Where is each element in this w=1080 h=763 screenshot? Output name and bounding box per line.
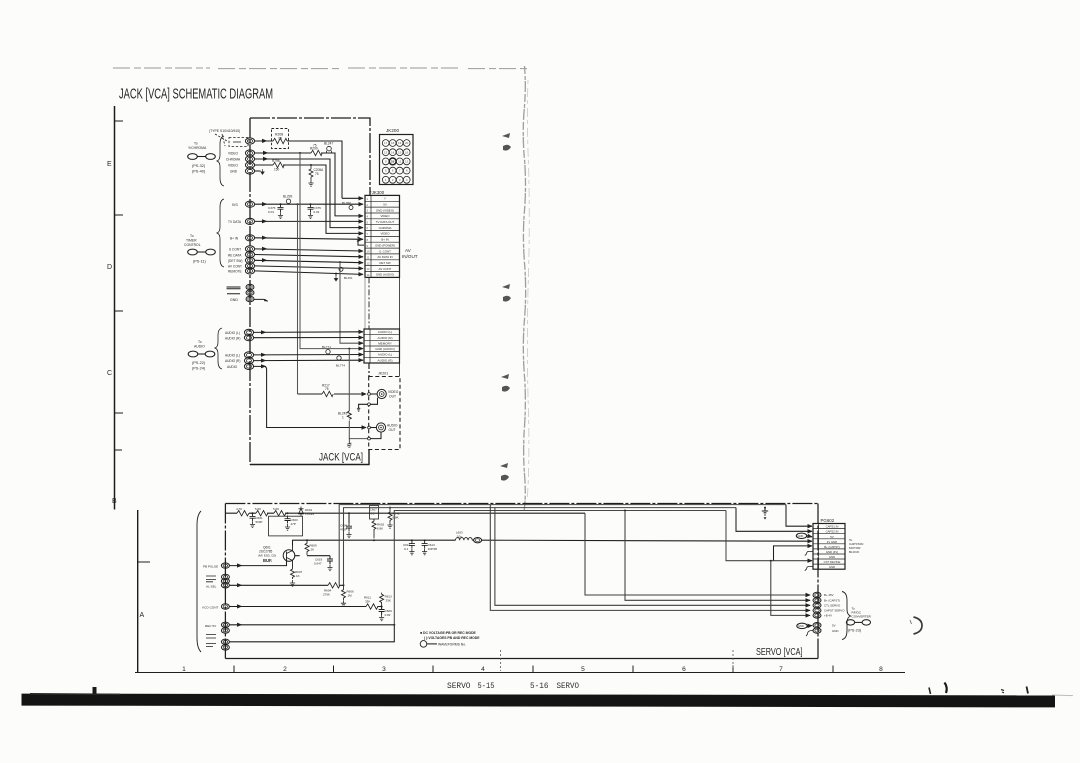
svg-text:To: To xyxy=(190,234,194,238)
svg-text:GND: GND xyxy=(829,555,835,559)
svg-text:SERVO: SERVO xyxy=(557,682,580,691)
svg-text:1K: 1K xyxy=(296,574,300,578)
svg-text:*JK300: *JK300 xyxy=(370,190,385,195)
svg-text:12: 12 xyxy=(405,160,409,164)
svg-text:OUT: OUT xyxy=(389,428,396,432)
svg-text:CHROMA: CHROMA xyxy=(226,157,241,161)
svg-text:GND: GND xyxy=(829,565,835,569)
svg-text:(PS-22): (PS-22) xyxy=(192,361,206,365)
svg-text:IN/OUT: IN/OUT xyxy=(402,254,418,259)
svg-text:E: E xyxy=(107,161,112,168)
svg-text:Y: Y xyxy=(384,197,386,201)
svg-text:(PS-11): (PS-11) xyxy=(193,260,207,264)
svg-text:5.6K: 5.6K xyxy=(273,507,279,511)
svg-text:S. CONT: S. CONT xyxy=(379,249,391,253)
svg-text:(PS-40): (PS-40) xyxy=(192,170,206,174)
svg-text:JK201: JK201 xyxy=(378,372,388,376)
svg-text:GND (VIDEO): GND (VIDEO) xyxy=(376,208,394,212)
svg-text:SERVO: SERVO xyxy=(447,682,471,691)
svg-text:CST DEVICE: CST DEVICE xyxy=(824,560,841,564)
svg-text:(TYPE S10/410/510): (TYPE S10/410/510) xyxy=(209,129,240,133)
svg-text:75: 75 xyxy=(313,143,317,147)
svg-text:To: To xyxy=(198,340,202,344)
svg-text:VIDEO: VIDEO xyxy=(381,232,391,236)
svg-text:1M: 1M xyxy=(348,593,353,597)
svg-text:1: 1 xyxy=(182,666,186,673)
svg-text:PB PULSE: PB PULSE xyxy=(203,565,218,569)
svg-text:2: 2 xyxy=(283,666,287,673)
svg-text:75: 75 xyxy=(315,172,319,176)
svg-text:S CONT: S CONT xyxy=(229,248,241,252)
svg-text:TV DATA OUT: TV DATA OUT xyxy=(376,220,395,224)
svg-text:B: B xyxy=(112,498,117,505)
svg-text:AUDIO (R): AUDIO (R) xyxy=(378,358,393,362)
svg-text:AUDIO (L): AUDIO (L) xyxy=(378,353,392,357)
svg-text:AUDIO: AUDIO xyxy=(194,345,205,349)
svg-text:TV DATA: TV DATA xyxy=(228,220,242,224)
svg-text:( ):VOLTAGES PB AND REC MODE: ( ):VOLTAGES PB AND REC MODE xyxy=(424,636,480,640)
svg-text:Y/CHROMA: Y/CHROMA xyxy=(188,146,207,150)
svg-text:CONVERTER: CONVERTER xyxy=(852,615,872,619)
svg-text:75: 75 xyxy=(325,387,329,391)
svg-text:8: 8 xyxy=(879,666,883,673)
svg-text:GND (POWER): GND (POWER) xyxy=(375,243,395,247)
svg-text:B+ IN: B+ IN xyxy=(381,238,388,242)
svg-text:AUDIO (R): AUDIO (R) xyxy=(378,336,393,340)
svg-text:PG602: PG602 xyxy=(821,518,835,523)
svg-text:A: A xyxy=(140,612,145,619)
svg-text:(PS-23): (PS-23) xyxy=(848,629,862,633)
svg-text:CTL SERVO: CTL SERVO xyxy=(824,604,841,608)
svg-text:BL3%: BL3% xyxy=(344,276,353,280)
svg-text:19: 19 xyxy=(398,141,402,145)
svg-text:B+ IN: B+ IN xyxy=(230,237,239,241)
svg-text:6.8K: 6.8K xyxy=(393,515,399,519)
svg-text:VCO CONT: VCO CONT xyxy=(202,606,218,610)
svg-text:AUDIO (R): AUDIO (R) xyxy=(225,359,240,363)
svg-text:17: 17 xyxy=(384,141,388,145)
svg-text:AV CONT: AV CONT xyxy=(228,265,242,269)
svg-text:JACK [VCA] SCHEMATIC DIAGRAM: JACK [VCA] SCHEMATIC DIAGRAM xyxy=(119,87,273,103)
svg-text:(PS-32): (PS-32) xyxy=(192,164,206,168)
svg-text:5.6K: 5.6K xyxy=(255,507,261,511)
svg-text:AUDIO (L): AUDIO (L) xyxy=(225,331,240,335)
svg-text:AV CONT: AV CONT xyxy=(379,267,392,271)
svg-text:13: 13 xyxy=(384,150,388,154)
svg-text:OUT: OUT xyxy=(389,394,396,398)
svg-text:5-15: 5-15 xyxy=(478,682,495,691)
svg-text:BL774: BL774 xyxy=(336,364,345,368)
svg-text:10P/35: 10P/35 xyxy=(428,547,438,551)
svg-text:BLOCK: BLOCK xyxy=(849,550,860,554)
svg-text:GND (4V): GND (4V) xyxy=(826,550,838,554)
svg-text:GND (AUDIO): GND (AUDIO) xyxy=(375,347,395,351)
svg-text:15: 15 xyxy=(398,150,402,154)
svg-text:+B 4V: +B 4V xyxy=(824,614,832,618)
svg-text:AUDIO (L): AUDIO (L) xyxy=(378,330,392,334)
svg-text:CHROMA: CHROMA xyxy=(379,226,392,230)
svg-text:270K: 270K xyxy=(323,592,330,596)
svg-text:CAPS1 IN: CAPS1 IN xyxy=(826,525,839,529)
svg-text:GND: GND xyxy=(230,298,238,302)
svg-text:JK200: JK200 xyxy=(386,128,399,133)
svg-text:5V: 5V xyxy=(830,535,834,539)
svg-text:3: 3 xyxy=(382,666,386,673)
svg-text:BUF.: BUF. xyxy=(263,558,272,563)
svg-text:C: C xyxy=(107,370,112,377)
svg-text:(DET SW): (DET SW) xyxy=(228,259,242,263)
svg-text:R796: R796 xyxy=(272,159,280,163)
svg-text:VIDEO: VIDEO xyxy=(228,163,238,167)
svg-text:0.1: 0.1 xyxy=(371,511,375,515)
svg-text:0.82: 0.82 xyxy=(385,613,391,617)
svg-text:■ DC VOLTAGE:PB OR REC MODE: ■ DC VOLTAGE:PB OR REC MODE xyxy=(420,631,477,635)
svg-text:VIDEO: VIDEO xyxy=(381,214,391,218)
svg-text:AUDIO (L): AUDIO (L) xyxy=(225,354,240,358)
svg-text:AV: AV xyxy=(405,248,412,253)
svg-text:D: D xyxy=(107,264,112,271)
svg-text:4V GND: 4V GND xyxy=(827,540,837,544)
svg-text:AUDIO: AUDIO xyxy=(227,365,238,369)
svg-text:(NF, ESD, CD): (NF, ESD, CD) xyxy=(258,553,276,557)
svg-text:0.01: 0.01 xyxy=(314,210,320,214)
svg-text:18: 18 xyxy=(391,141,395,145)
svg-text:4: 4 xyxy=(481,666,485,673)
svg-text:0.047: 0.047 xyxy=(314,561,322,565)
svg-text:B+ (CAPST): B+ (CAPST) xyxy=(824,545,840,549)
svg-text:5V3: 5V3 xyxy=(232,203,238,207)
svg-text:560P: 560P xyxy=(256,520,263,524)
svg-text:GND: GND xyxy=(798,624,804,628)
svg-text:5-16: 5-16 xyxy=(530,682,549,691)
svg-text:150: 150 xyxy=(274,168,280,172)
svg-text:16: 16 xyxy=(405,150,409,154)
svg-text:MEMORY: MEMORY xyxy=(378,341,392,345)
svg-text:JACK [VCA]: JACK [VCA] xyxy=(319,452,363,464)
svg-text:CONTROL: CONTROL xyxy=(184,243,201,247)
svg-text:SERVO [VCA]: SERVO [VCA] xyxy=(756,646,803,658)
svg-text:BL350: BL350 xyxy=(342,201,351,205)
svg-text:5: 5 xyxy=(581,666,585,673)
svg-text:4.7K: 4.7K xyxy=(236,507,242,511)
svg-text:6.8K: 6.8K xyxy=(377,526,383,530)
svg-text:BL247: BL247 xyxy=(324,142,333,146)
svg-text:WAVEFORMS No.: WAVEFORMS No. xyxy=(438,643,466,647)
svg-text:To: To xyxy=(194,142,198,146)
svg-text:AV DATA IN: AV DATA IN xyxy=(377,255,392,259)
svg-text:33K: 33K xyxy=(365,599,370,603)
svg-text:DET SW: DET SW xyxy=(379,261,390,265)
svg-text:BL299: BL299 xyxy=(283,195,292,199)
svg-text:VIDEO: VIDEO xyxy=(228,151,238,155)
svg-text:GND: GND xyxy=(230,169,238,173)
svg-text:RE DATA: RE DATA xyxy=(228,253,242,257)
svg-text:1SS99: 1SS99 xyxy=(305,512,314,516)
svg-text:GND: GND xyxy=(798,534,804,538)
svg-text:0.01: 0.01 xyxy=(268,210,274,214)
svg-text:5V: 5V xyxy=(832,623,836,627)
svg-text:GND: GND xyxy=(832,629,838,633)
svg-text:REMOTE: REMOTE xyxy=(228,270,242,274)
svg-text:14: 14 xyxy=(391,150,395,154)
svg-text:AL SEL: AL SEL xyxy=(206,584,217,588)
svg-text:(PS-24): (PS-24) xyxy=(192,367,206,371)
svg-text:1: 1 xyxy=(342,416,344,420)
svg-text:10u: 10u xyxy=(457,534,462,538)
svg-text:B+ 45V: B+ 45V xyxy=(824,593,834,597)
svg-text:11: 11 xyxy=(398,160,401,164)
svg-text:B+ (CAPST): B+ (CAPST) xyxy=(824,599,840,603)
svg-text:REC 5V: REC 5V xyxy=(205,624,217,628)
svg-text:5V: 5V xyxy=(383,203,387,207)
svg-text:2K: 2K xyxy=(311,547,315,551)
svg-text:CAPS2 IN: CAPS2 IN xyxy=(826,530,839,534)
svg-text:GND (AUDIO): GND (AUDIO) xyxy=(376,273,394,277)
svg-text:AUDIO (R): AUDIO (R) xyxy=(225,337,240,341)
svg-text:20: 20 xyxy=(405,141,409,145)
svg-text:7: 7 xyxy=(779,666,783,673)
svg-text:CAPST SERVO: CAPST SERVO xyxy=(824,609,845,613)
svg-text:47P: 47P xyxy=(291,522,296,526)
svg-text:10: 10 xyxy=(391,160,395,164)
svg-text:0.1: 0.1 xyxy=(404,547,409,551)
svg-text:33K: 33K xyxy=(386,598,391,602)
svg-text:BL771: BL771 xyxy=(322,345,331,349)
svg-text:TIMER: TIMER xyxy=(186,239,197,243)
svg-text:6: 6 xyxy=(682,666,686,673)
